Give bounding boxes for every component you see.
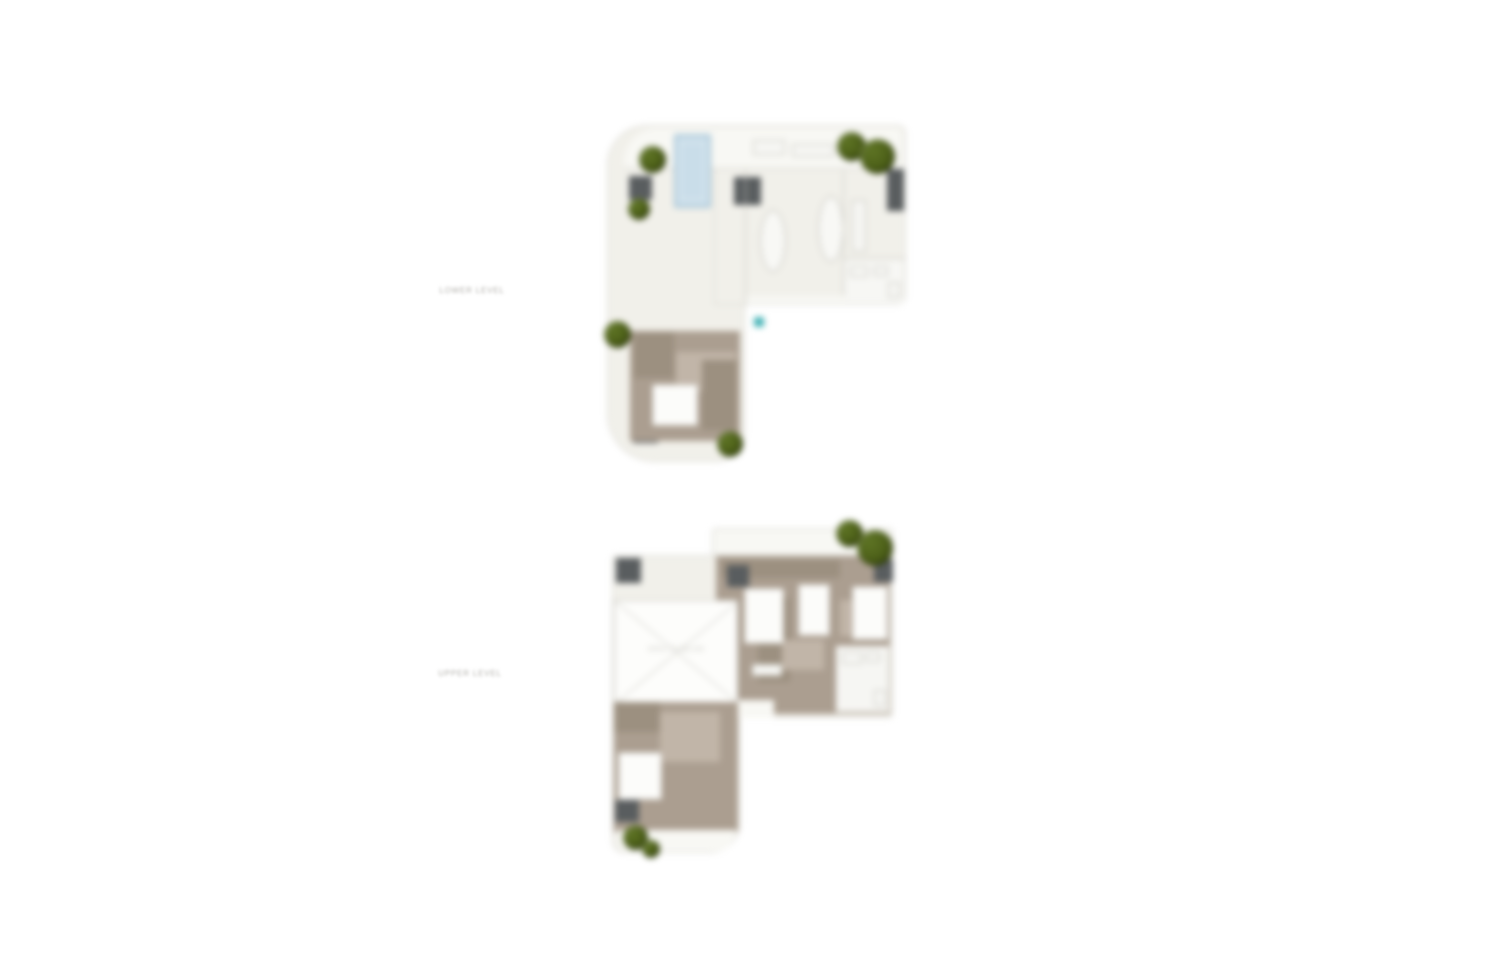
sink-fixture	[874, 266, 888, 276]
tree-icon	[604, 321, 631, 348]
bathtub	[850, 266, 868, 277]
bed-furniture	[798, 584, 830, 636]
tree-icon	[628, 198, 650, 220]
core-shaft	[727, 565, 749, 587]
interior-wall	[745, 170, 746, 305]
interior-wall	[843, 258, 905, 259]
carpet-light-area	[660, 712, 720, 762]
sofa-furniture	[753, 140, 785, 155]
sofa-furniture	[792, 144, 834, 157]
core-shaft	[887, 169, 904, 211]
core-shaft	[615, 800, 639, 822]
upper-level-label: UPPER LEVEL	[425, 669, 515, 678]
core-shaft	[734, 177, 761, 205]
corridor	[738, 700, 774, 718]
lower-level-label: LOWER LEVEL	[427, 286, 517, 295]
void-label: OPEN TO BELOW	[615, 647, 737, 653]
carpet-light-area	[782, 640, 824, 670]
bed-furniture	[744, 588, 784, 644]
toilet-fixture	[874, 690, 886, 706]
open-to-below-void: OPEN TO BELOW	[614, 600, 738, 703]
tree-icon	[642, 840, 660, 858]
closet-area	[634, 332, 674, 378]
floorplan-page: OPEN TO BELOW LOWER LEVEL UPPER LEVEL	[0, 0, 1500, 975]
tree-icon	[717, 431, 743, 457]
sink-fixture	[866, 652, 880, 662]
tree-icon	[857, 530, 893, 566]
closet-area	[614, 702, 660, 732]
plans-artwork: OPEN TO BELOW	[0, 0, 1500, 975]
toilet-fixture	[888, 282, 900, 298]
teal-marker-icon	[754, 317, 764, 327]
bed-furniture	[618, 752, 662, 800]
kitchen-counter	[852, 200, 866, 252]
wardrobe-area	[702, 360, 736, 430]
pool-water-edge	[680, 142, 705, 200]
bed-furniture	[852, 586, 888, 640]
swimming-pool	[674, 134, 711, 208]
core-shaft	[616, 558, 641, 583]
dresser-furniture	[752, 664, 782, 676]
bathtub	[842, 652, 862, 664]
tree-icon	[639, 146, 666, 173]
core-shaft	[629, 176, 652, 200]
tree-icon	[860, 139, 895, 174]
bed-furniture	[652, 384, 698, 426]
dining-table	[760, 210, 786, 272]
dining-table	[818, 196, 844, 262]
